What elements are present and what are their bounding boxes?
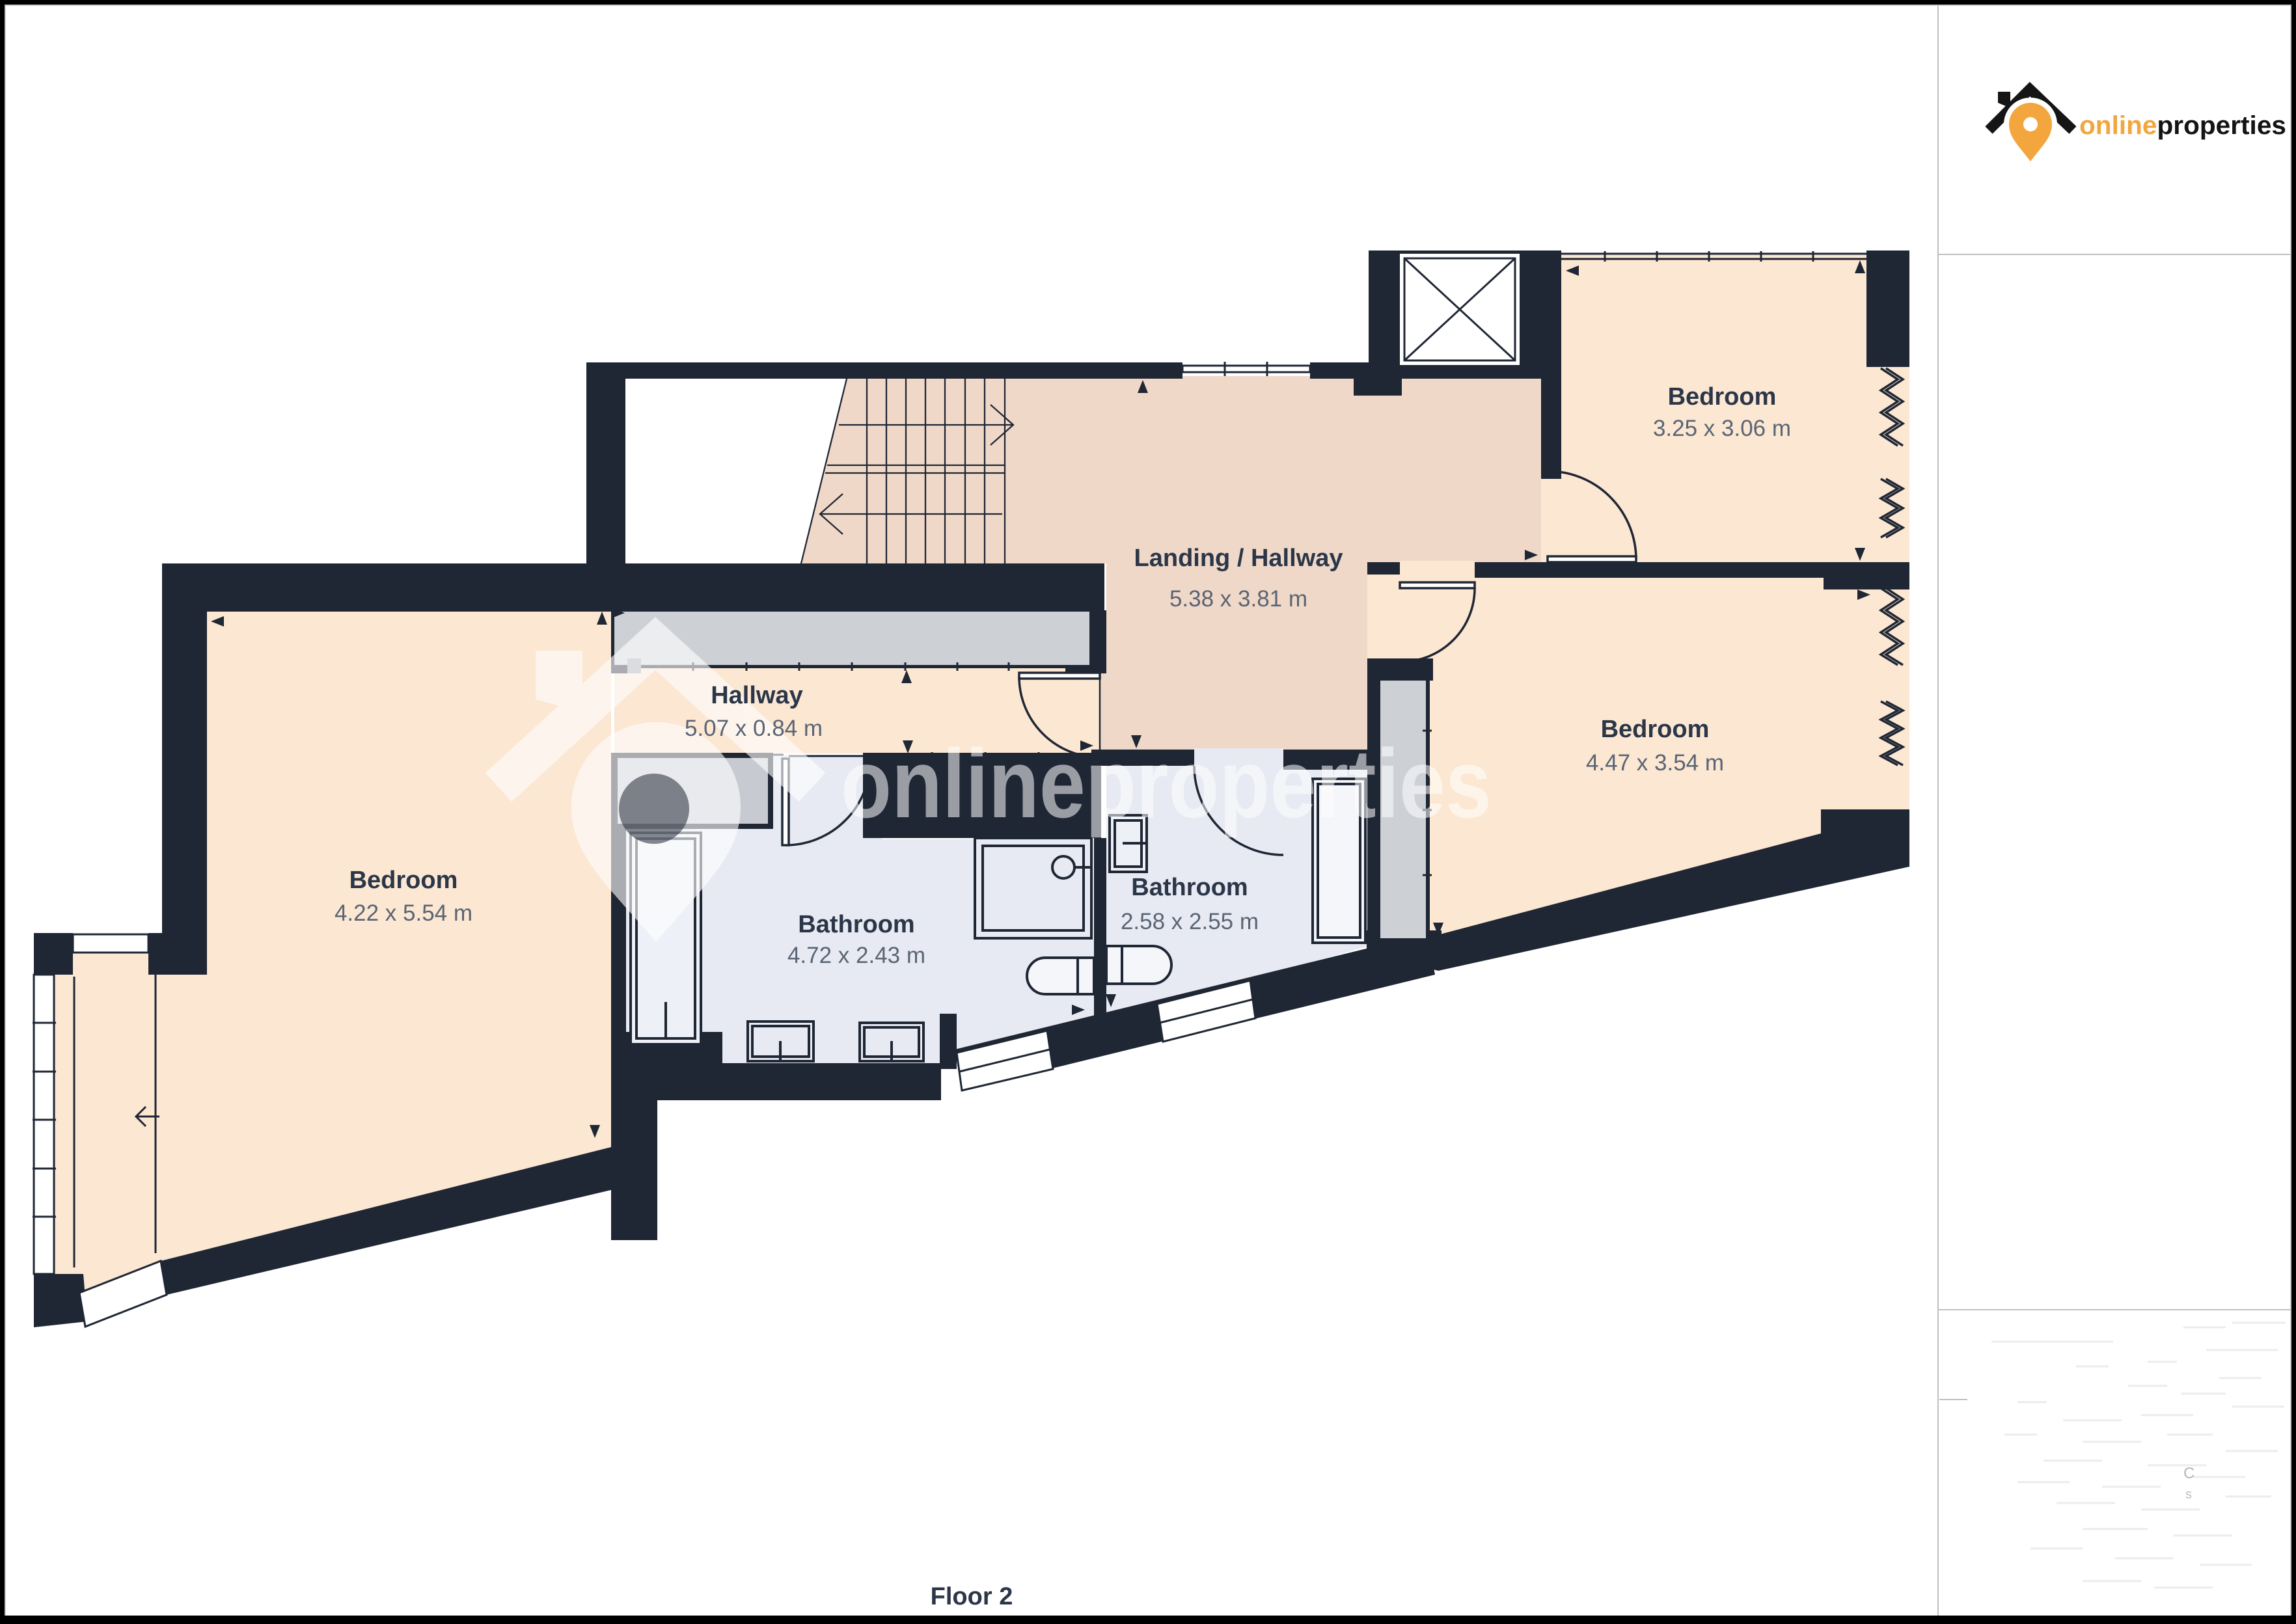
svg-text:5.38 x 3.81 m: 5.38 x 3.81 m	[1169, 586, 1307, 612]
svg-text:4.22 x 5.54 m: 4.22 x 5.54 m	[335, 900, 472, 926]
svg-text:onlineproperties: onlineproperties	[841, 729, 1492, 838]
svg-text:Bedroom: Bedroom	[349, 867, 458, 894]
svg-text:Bathroom: Bathroom	[1131, 874, 1248, 901]
svg-text:onlineproperties: onlineproperties	[2079, 111, 2286, 140]
svg-text:C: C	[2183, 1465, 2194, 1482]
svg-text:Bedroom: Bedroom	[1668, 383, 1777, 411]
svg-text:s: s	[2185, 1487, 2192, 1502]
svg-text:Bathroom: Bathroom	[798, 911, 914, 938]
svg-text:4.47 x 3.54 m: 4.47 x 3.54 m	[1586, 750, 1724, 776]
svg-text:2.58 x 2.55 m: 2.58 x 2.55 m	[1121, 909, 1259, 934]
svg-text:Landing / Hallway: Landing / Hallway	[1134, 545, 1343, 572]
svg-text:5.07 x 0.84 m: 5.07 x 0.84 m	[685, 716, 823, 741]
svg-text:Hallway: Hallway	[711, 682, 803, 709]
svg-text:3.25 x 3.06 m: 3.25 x 3.06 m	[1653, 416, 1791, 441]
svg-text:Floor 2: Floor 2	[931, 1583, 1013, 1610]
svg-text:4.72 x 2.43 m: 4.72 x 2.43 m	[787, 943, 925, 968]
svg-text:Bedroom: Bedroom	[1601, 716, 1710, 743]
